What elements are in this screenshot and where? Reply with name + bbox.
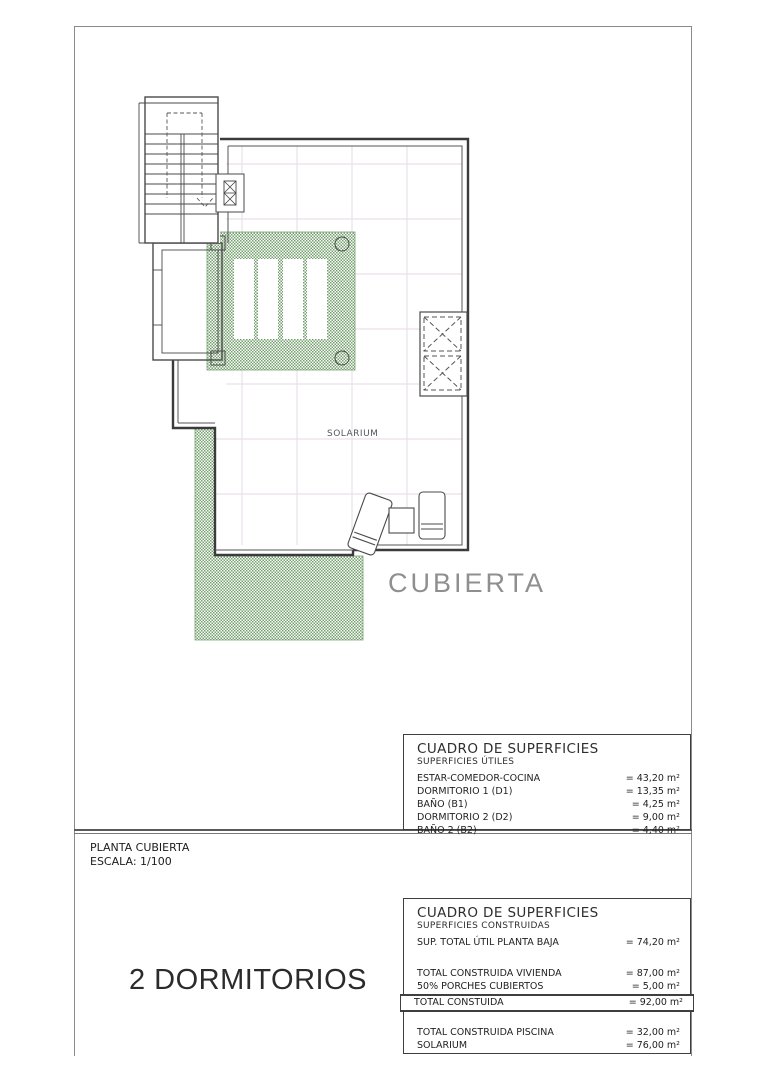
table-row: 50% PORCHES CUBIERTOS = 5,00 m² xyxy=(404,980,690,993)
table-row: SUP. TOTAL ÚTIL PLANTA BAJA = 74,20 m² xyxy=(404,936,690,949)
row-label: SUP. TOTAL ÚTIL PLANTA BAJA xyxy=(417,936,559,949)
table-row-total: TOTAL CONSTUIDA = 92,00 m² xyxy=(401,996,693,1010)
table-title: CUADRO DE SUPERFICIES xyxy=(404,741,690,757)
total-construida-box: TOTAL CONSTUIDA = 92,00 m² xyxy=(400,994,694,1012)
plan-name: PLANTA CUBIERTA xyxy=(90,841,189,855)
table-row: TOTAL CONSTRUIDA VIVIENDA = 87,00 m² xyxy=(404,967,690,980)
table-subtitle: SUPERFICIES CONSTRUIDAS xyxy=(404,921,690,932)
pergola xyxy=(207,232,355,370)
table-row: BAÑO (B1) = 4,25 m² xyxy=(404,798,690,811)
row-label: SOLARIUM xyxy=(417,1039,467,1052)
row-value: = 32,00 m² xyxy=(626,1026,680,1039)
row-label: BAÑO (B1) xyxy=(417,798,468,811)
row-label: DORMITORIO 2 (D2) xyxy=(417,811,512,824)
table-superficies-construidas: CUADRO DE SUPERFICIES SUPERFICIES CONSTR… xyxy=(403,898,691,1054)
row-value: = 43,20 m² xyxy=(626,772,680,785)
row-label: 50% PORCHES CUBIERTOS xyxy=(417,980,543,993)
side-table xyxy=(389,508,414,533)
row-value: = 4,40 m² xyxy=(632,824,680,837)
row-value: = 87,00 m² xyxy=(626,967,680,980)
row-value: = 5,00 m² xyxy=(632,980,680,993)
lounger-straight xyxy=(419,492,445,539)
row-label: DORMITORIO 1 (D1) xyxy=(417,785,512,798)
skylights xyxy=(420,312,467,396)
row-label: TOTAL CONSTRUIDA VIVIENDA xyxy=(417,967,562,980)
scanned-plan-page: { "page": { "type_label": "2 DORMITORIOS… xyxy=(0,0,764,1080)
vent-chimney xyxy=(216,174,244,212)
table-title: CUADRO DE SUPERFICIES xyxy=(404,905,690,921)
sun-loungers xyxy=(347,492,445,556)
table-row: DORMITORIO 2 (D2) = 9,00 m² xyxy=(404,811,690,824)
lounger-tilted xyxy=(347,492,393,556)
table-row: SOLARIUM = 76,00 m² xyxy=(404,1039,690,1052)
table-superficies-utiles: CUADRO DE SUPERFICIES SUPERFICIES ÚTILES… xyxy=(403,734,691,830)
table-row: TOTAL CONSTRUIDA PISCINA = 32,00 m² xyxy=(404,1026,690,1039)
table-row: ESTAR-COMEDOR-COCINA = 43,20 m² xyxy=(404,772,690,785)
row-value: = 74,20 m² xyxy=(626,936,680,949)
roof-plan-label: CUBIERTA xyxy=(388,568,546,599)
row-label: TOTAL CONSTRUIDA PISCINA xyxy=(417,1026,554,1039)
row-value: = 92,00 m² xyxy=(629,996,683,1010)
table-subtitle: SUPERFICIES ÚTILES xyxy=(404,757,690,768)
table-row: DORMITORIO 1 (D1) = 13,35 m² xyxy=(404,785,690,798)
row-label: ESTAR-COMEDOR-COCINA xyxy=(417,772,540,785)
bedrooms-count-label: 2 DORMITORIOS xyxy=(129,964,367,997)
row-value: = 9,00 m² xyxy=(632,811,680,824)
solarium-label: SOLARIUM xyxy=(327,429,378,439)
row-value: = 4,25 m² xyxy=(632,798,680,811)
row-value: = 76,00 m² xyxy=(626,1039,680,1052)
row-value: = 13,35 m² xyxy=(626,785,680,798)
row-label: TOTAL CONSTUIDA xyxy=(414,996,504,1010)
sheet-title-block: PLANTA CUBIERTA ESCALA: 1/100 xyxy=(90,841,189,869)
row-label: BAÑO 2 (B2) xyxy=(417,824,477,837)
staircase xyxy=(139,97,220,243)
table-row: BAÑO 2 (B2) = 4,40 m² xyxy=(404,824,690,837)
green-shaded-area xyxy=(195,428,363,640)
plan-scale: ESCALA: 1/100 xyxy=(90,855,189,869)
